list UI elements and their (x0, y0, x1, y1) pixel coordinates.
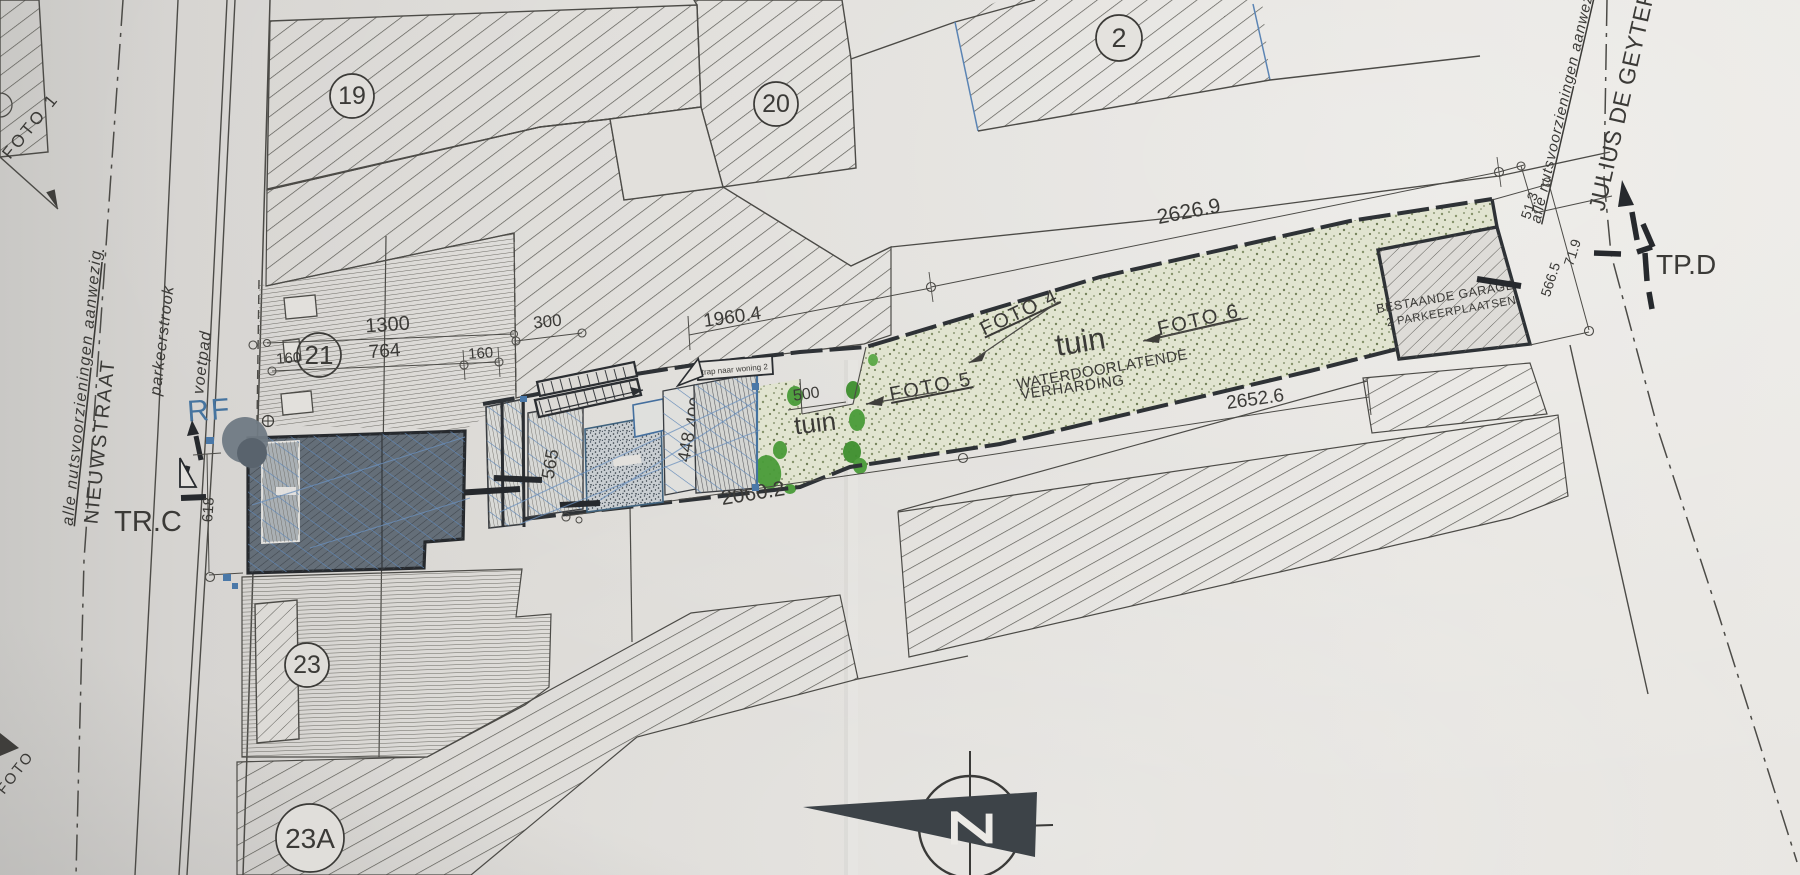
svg-text:TR.C: TR.C (114, 506, 182, 538)
svg-text:tuin: tuin (792, 406, 837, 441)
svg-text:160: 160 (276, 349, 302, 368)
svg-text:19: 19 (338, 82, 366, 110)
svg-text:23: 23 (293, 651, 321, 679)
svg-text:Z: Z (938, 810, 1005, 847)
svg-text:1300: 1300 (365, 312, 411, 337)
svg-text:23A: 23A (285, 823, 335, 854)
svg-text:20: 20 (762, 90, 790, 118)
svg-text:160: 160 (468, 344, 494, 363)
svg-text:764: 764 (368, 340, 402, 363)
svg-text:TP.D: TP.D (1656, 249, 1716, 280)
svg-text:618: 618 (199, 497, 218, 523)
svg-text:2: 2 (1111, 23, 1126, 53)
svg-text:21: 21 (305, 340, 334, 370)
svg-text:300: 300 (532, 311, 562, 333)
